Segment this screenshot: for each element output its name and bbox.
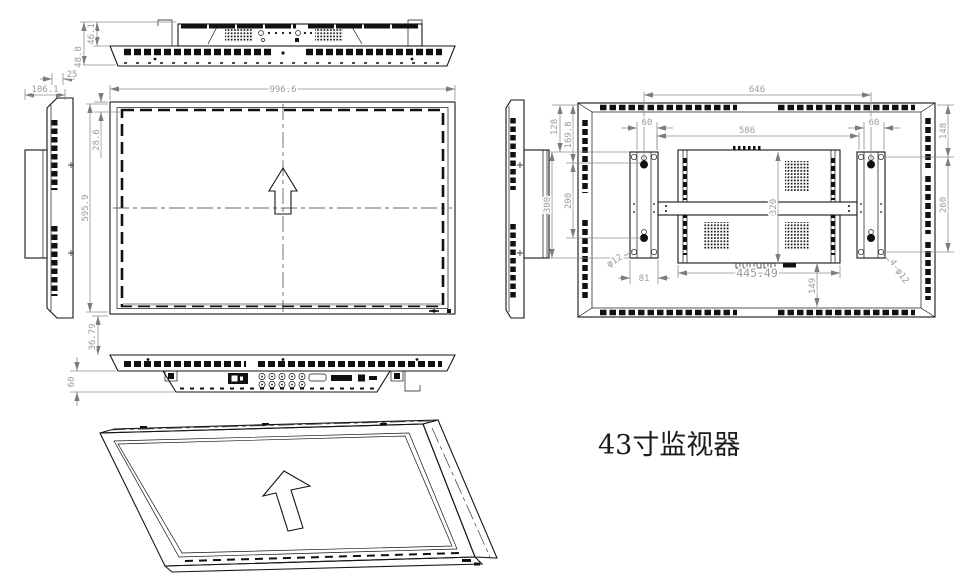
connector-panel	[163, 371, 390, 392]
front-view	[110, 102, 455, 314]
dim-646: 646	[749, 85, 765, 95]
top-view	[110, 20, 455, 66]
dim-4-phi12: 4-φ12	[887, 258, 911, 286]
bnc-connectors	[259, 373, 305, 387]
dim-200: 200	[564, 193, 574, 209]
hanger-hook	[158, 20, 172, 46]
port-label	[228, 373, 248, 384]
dim-149: 149	[808, 278, 818, 294]
dim-169-8: 169.8	[564, 121, 574, 148]
wall-mount-bracket-profile	[25, 150, 47, 258]
dim-148: 148	[939, 123, 949, 139]
io-port	[331, 375, 352, 381]
cross-support-bar	[658, 202, 857, 215]
dim-300: 300	[543, 197, 553, 213]
dim-60-left: 60	[642, 118, 653, 128]
vesa-bracket-right	[857, 152, 885, 258]
dim-595-9: 595.9	[81, 194, 91, 221]
dim-81: 81	[639, 274, 650, 284]
dim-48-8: 48.8	[74, 46, 84, 68]
vent-grid	[785, 222, 809, 249]
vent-grid	[225, 28, 253, 42]
bottom-view	[110, 355, 455, 392]
vesa-bracket-left	[630, 152, 658, 258]
dim-60-right: 60	[869, 118, 880, 128]
vent-grid	[785, 161, 809, 192]
orientation-up-arrow	[263, 471, 310, 531]
dim-phi12: φ12	[605, 253, 624, 270]
dim-445-49: 445.49	[736, 266, 778, 280]
vent-grid	[315, 28, 343, 42]
dim-320: 320	[769, 199, 779, 215]
isometric-view	[100, 420, 497, 572]
vent-grid	[704, 222, 729, 249]
dim-36-79: 36.79	[88, 323, 98, 350]
dim-28-6: 28.6	[92, 129, 102, 151]
dim-586: 586	[739, 126, 755, 136]
power-led	[447, 309, 451, 313]
vga-port	[309, 374, 326, 381]
dim-128: 128	[550, 119, 560, 135]
dim-25: 25	[67, 70, 78, 80]
left-side-view	[25, 98, 74, 318]
rear-view	[578, 103, 935, 317]
dim-60-bottom: 60	[67, 377, 77, 388]
dim-46-1: 46.1	[87, 23, 97, 45]
dim-996-6: 996.6	[269, 85, 296, 95]
engineering-drawing-canvas: 46.1 48.8 25 106.1 996.6 28.6 595.9 36.7…	[0, 0, 971, 578]
dim-106-1: 106.1	[31, 85, 58, 95]
drawing-title: 43寸监视器	[598, 430, 740, 461]
dim-260: 260	[939, 197, 949, 213]
